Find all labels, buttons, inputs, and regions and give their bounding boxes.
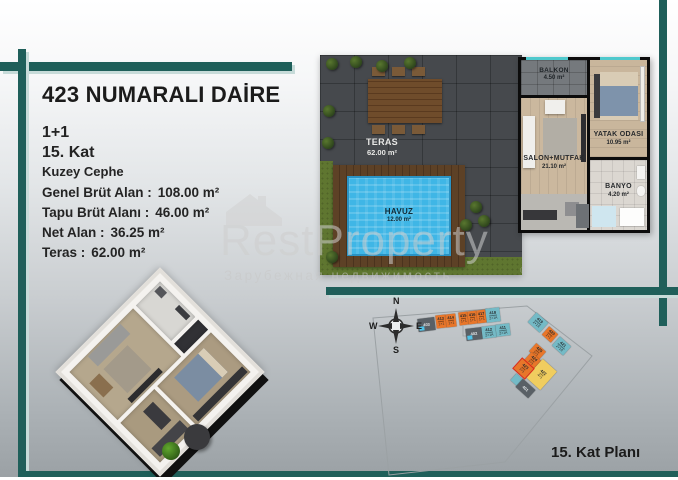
site-unit-421: 4212+1A: [552, 337, 571, 356]
bath-cabinet: [620, 208, 644, 226]
detail-label: Tapu Brüt Alanı :: [42, 205, 149, 220]
detail-value: 108.00 m²: [158, 185, 220, 200]
iso-dining-table: [89, 373, 113, 397]
outdoor-table: [368, 79, 442, 123]
iso-terrace-table: [184, 424, 210, 450]
shrub-icon: [470, 201, 482, 213]
room-name: HAVUZ: [385, 207, 413, 217]
detail-gross-area: Genel Brüt Alan :108.00 m²: [42, 185, 219, 201]
shrub-icon: [460, 219, 472, 231]
shrub-icon: [376, 60, 388, 72]
sofa: [523, 116, 535, 168]
unit-3d-render: [50, 256, 270, 480]
shrub-icon: [326, 251, 338, 263]
pool-label: HAVUZ 12.00 m²: [385, 207, 413, 225]
floor-number: 15. Kat: [42, 144, 94, 162]
grass-strip: [320, 161, 333, 261]
iso-vanity: [175, 305, 191, 321]
compass-south-label: S: [393, 345, 399, 354]
middle-horizontal-bar: [326, 287, 678, 295]
armchair: [545, 100, 565, 114]
compass-icon: N E S W: [368, 296, 424, 354]
outdoor-chair: [392, 125, 405, 134]
site-plan-caption: 15. Kat Planı: [551, 444, 661, 461]
bedroom-window: [600, 57, 640, 60]
room-area: 62.00 m²: [342, 148, 422, 157]
site-plan: 4034131+14141+14151+14161+14171+14182+1A…: [368, 296, 670, 478]
shrub-icon: [323, 105, 335, 117]
compass-east-label: E: [416, 321, 422, 331]
detail-net-area: Net Alan :36.25 m²: [42, 225, 219, 241]
watermark-house-icon: [220, 186, 310, 232]
room-area: 12.00 m²: [385, 217, 413, 225]
terrace-label: TERAS 62.00 m²: [342, 137, 422, 158]
toilet: [637, 186, 645, 196]
sink: [637, 166, 645, 179]
tv-unit: [581, 114, 586, 162]
outdoor-chair: [372, 125, 385, 134]
area-details-list: Genel Brüt Alan :108.00 m² Tapu Brüt Ala…: [42, 185, 219, 265]
left-vertical-bar: [18, 49, 26, 477]
terrace-area: HAVUZ 12.00 m² TERAS 62.00 m²: [320, 55, 522, 275]
right-vertical-bar: [659, 0, 667, 326]
closet-block: [576, 204, 589, 228]
detail-value: 46.00 m²: [155, 205, 209, 220]
detail-label: Genel Brüt Alan :: [42, 185, 152, 200]
detail-value: 36.25 m²: [111, 225, 165, 240]
room-name: TERAS: [342, 137, 422, 148]
site-unit-418: 4182+1A: [485, 307, 501, 323]
detail-label: Net Alan :: [42, 225, 105, 240]
shrub-icon: [350, 56, 362, 68]
outdoor-chair: [412, 125, 425, 134]
shrub-icon: [478, 215, 490, 227]
brochure-page: 423 NUMARALI DAİRE 1+1 15. Kat Kuzey Cep…: [0, 0, 678, 480]
detail-deed-gross-area: Tapu Brüt Alanı :46.00 m²: [42, 205, 219, 221]
top-left-horizontal-bar: [0, 62, 292, 71]
kitchen-counter: [523, 210, 557, 220]
balcony-room: [521, 60, 587, 95]
bed-blanket: [600, 86, 638, 116]
pool: HAVUZ 12.00 m²: [347, 176, 451, 256]
shrub-icon: [404, 57, 416, 69]
compass-north-label: N: [393, 296, 400, 306]
shower: [592, 206, 616, 227]
bathroom-room: [590, 160, 647, 230]
shrub-icon: [326, 58, 338, 70]
outdoor-chair: [412, 67, 425, 76]
facade-direction: Kuzey Cephe: [42, 164, 124, 179]
iso-island: [143, 402, 171, 430]
page-title: 423 NUMARALI DAİRE: [42, 82, 280, 108]
rug: [543, 118, 577, 156]
iso-wc: [154, 286, 167, 299]
iso-shrub-icon: [162, 442, 180, 460]
bedroom-room: [590, 60, 647, 157]
isometric-apartment: [55, 267, 264, 476]
compass-west-label: W: [369, 321, 378, 331]
wardrobe: [640, 66, 645, 122]
site-unit-411: 4112+1A: [495, 323, 510, 337]
apartment-plan: BALKON 4.50 m² SALON+MUTFAK 21.10 m² YAT…: [518, 57, 650, 233]
site-unit-402: 402: [465, 327, 482, 341]
site-unit-412: 4122+1A: [481, 325, 496, 339]
floor-plan-2d: HAVUZ 12.00 m² TERAS 62.00 m²: [320, 55, 652, 277]
shrub-icon: [322, 137, 334, 149]
unit-type: 1+1: [42, 124, 69, 142]
balcony-window: [526, 57, 568, 60]
site-unit-414: 4141+1: [445, 313, 457, 327]
outdoor-chair: [392, 67, 405, 76]
